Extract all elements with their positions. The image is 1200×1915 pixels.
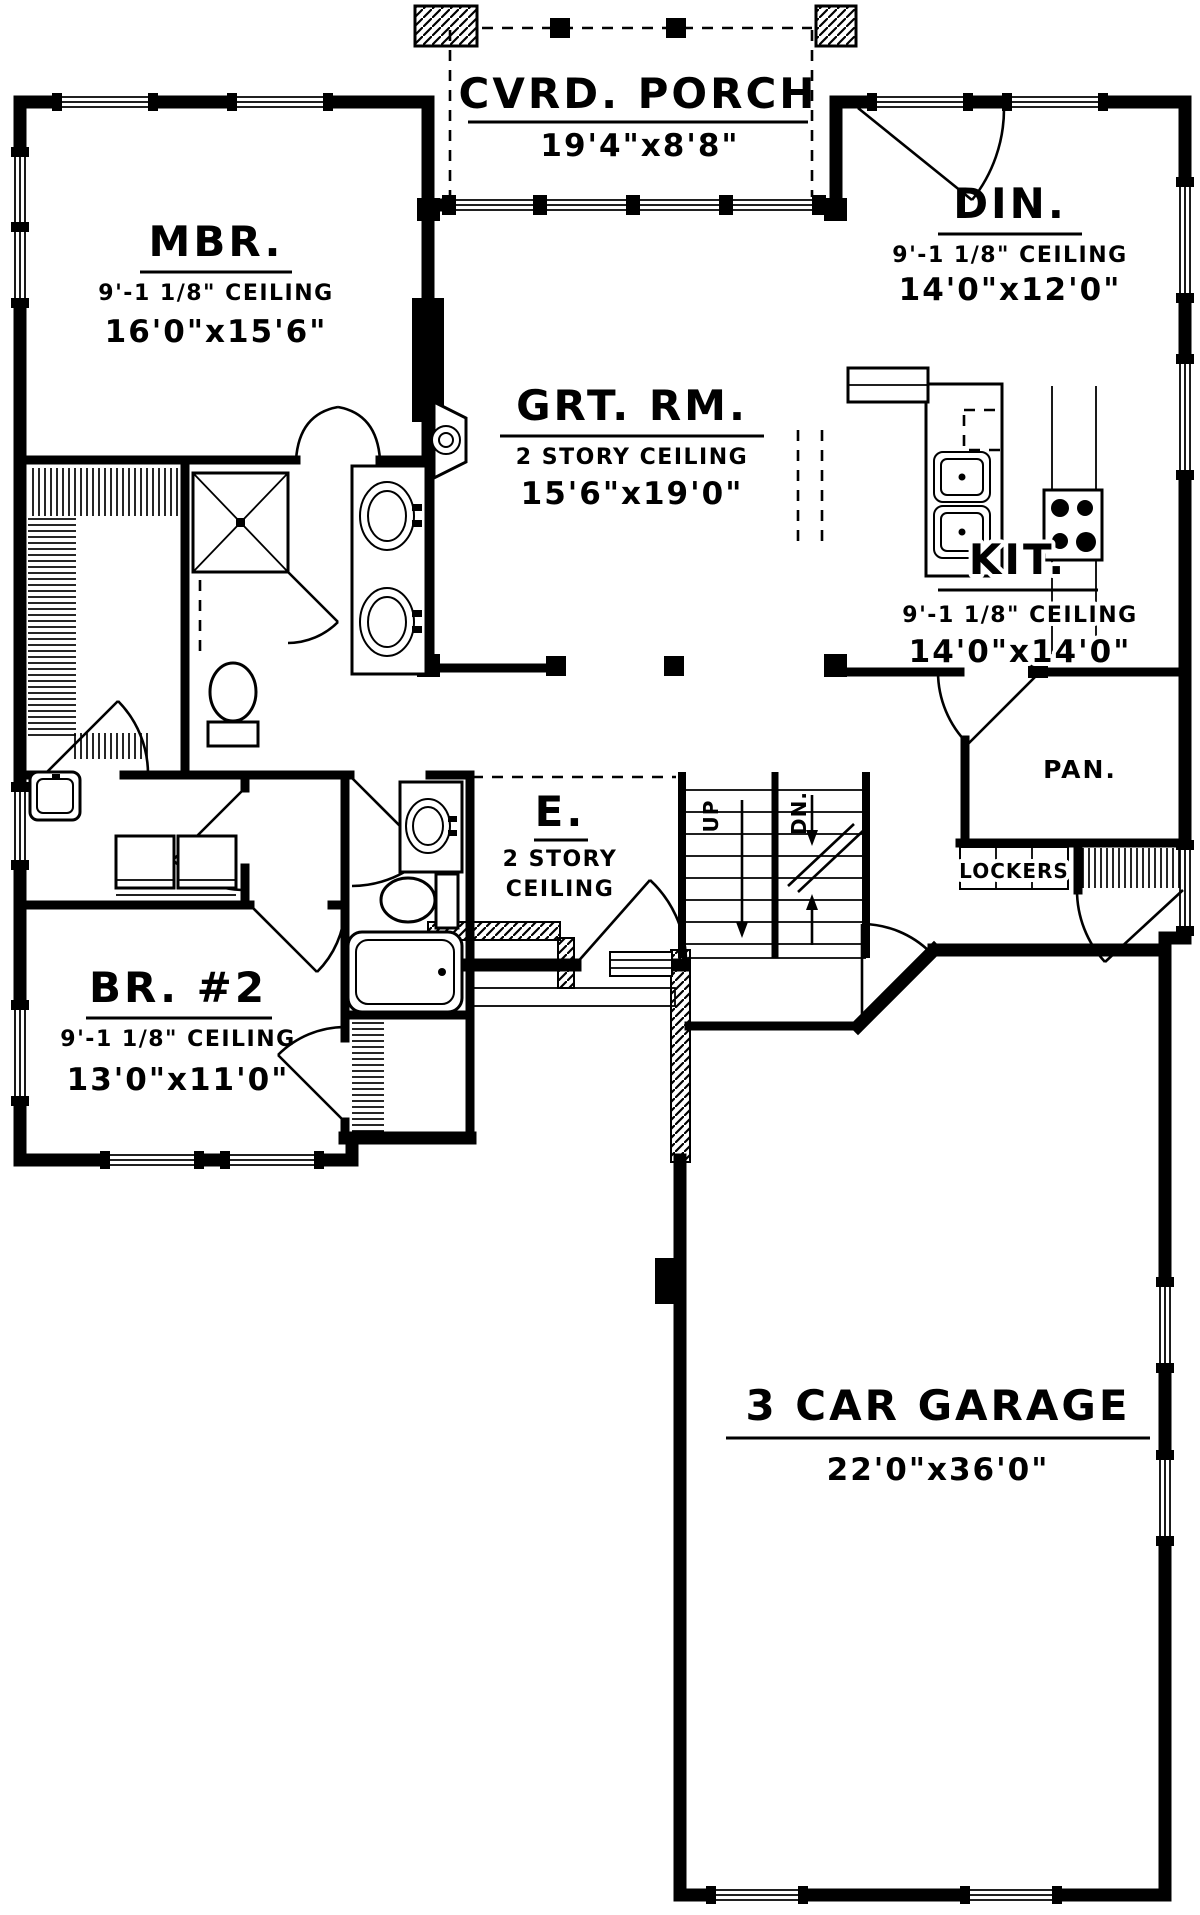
toilet [208, 663, 258, 746]
bathtub [348, 932, 462, 1012]
coat-closet-shelf [1082, 848, 1182, 888]
bath2-toilet [381, 874, 458, 928]
room-ceiling-kit: 9'-1 1/8" CEILING [902, 603, 1137, 628]
room-dims-kit: 14'0"x14'0" [909, 634, 1132, 670]
porch-post [666, 18, 686, 38]
floor-plan: CVRD. PORCH 19'4"x8'8" MBR. 9'-1 1/8" CE… [0, 0, 1200, 1915]
room-ceiling-entry-2: CEILING [506, 877, 615, 902]
room-label-garage: 3 CAR GARAGE [745, 1381, 1130, 1430]
pantry-door [938, 672, 1040, 744]
closet-shelf [28, 516, 76, 740]
vanity-double-sink [352, 466, 426, 674]
room-dims-garage: 22'0"x36'0" [827, 1452, 1050, 1488]
laundry-sink [30, 772, 80, 820]
br2-closet-shelf [352, 1022, 384, 1132]
room-label-porch: CVRD. PORCH [459, 69, 818, 118]
dryer [178, 836, 236, 888]
porch-pier [816, 6, 856, 46]
room-ceiling-grt: 2 STORY CEILING [516, 445, 748, 470]
buffet-counter [848, 368, 928, 402]
room-ceiling-br2: 9'-1 1/8" CEILING [60, 1027, 295, 1052]
room-label-din: DIN. [953, 179, 1067, 228]
room-label-lockers: LOCKERS [959, 859, 1069, 883]
room-label-pan: PAN. [1043, 755, 1117, 784]
stairs-up-label: UP [699, 800, 723, 833]
room-dims-br2: 13'0"x11'0" [67, 1062, 290, 1098]
room-dims-din: 14'0"x12'0" [899, 272, 1122, 308]
room-label-br2: BR. #2 [89, 963, 267, 1012]
shower [193, 473, 288, 572]
mbr-double-door [296, 407, 380, 460]
room-label-entry: E. [535, 787, 586, 836]
floor-plan-page: CVRD. PORCH 19'4"x8'8" MBR. 9'-1 1/8" CE… [0, 0, 1200, 1915]
closet-shelf [28, 468, 185, 516]
stairs-dn-label: DN. [787, 791, 811, 835]
porch-pier [415, 6, 477, 46]
br2-door [250, 905, 345, 972]
great-room-window-band [442, 195, 826, 215]
room-dims-grt: 15'6"x19'0" [521, 476, 744, 512]
fireplace-media [432, 402, 466, 478]
room-dims-mbr: 16'0"x15'6" [105, 314, 328, 350]
room-dims-porch: 19'4"x8'8" [540, 128, 739, 164]
closet-shelf [70, 733, 150, 759]
washer [116, 836, 174, 888]
room-ceiling-mbr: 9'-1 1/8" CEILING [98, 281, 333, 306]
room-label-grt: GRT. RM. [516, 381, 748, 430]
shower-door [288, 572, 338, 643]
room-ceiling-din: 9'-1 1/8" CEILING [892, 243, 1127, 268]
stoop-edge [470, 988, 675, 1006]
room-label-mbr: MBR. [149, 217, 284, 266]
room-ceiling-entry-1: 2 STORY [503, 847, 618, 872]
bath2-vanity [400, 782, 462, 872]
porch-post [550, 18, 570, 38]
room-label-kit: KIT. [969, 535, 1067, 584]
